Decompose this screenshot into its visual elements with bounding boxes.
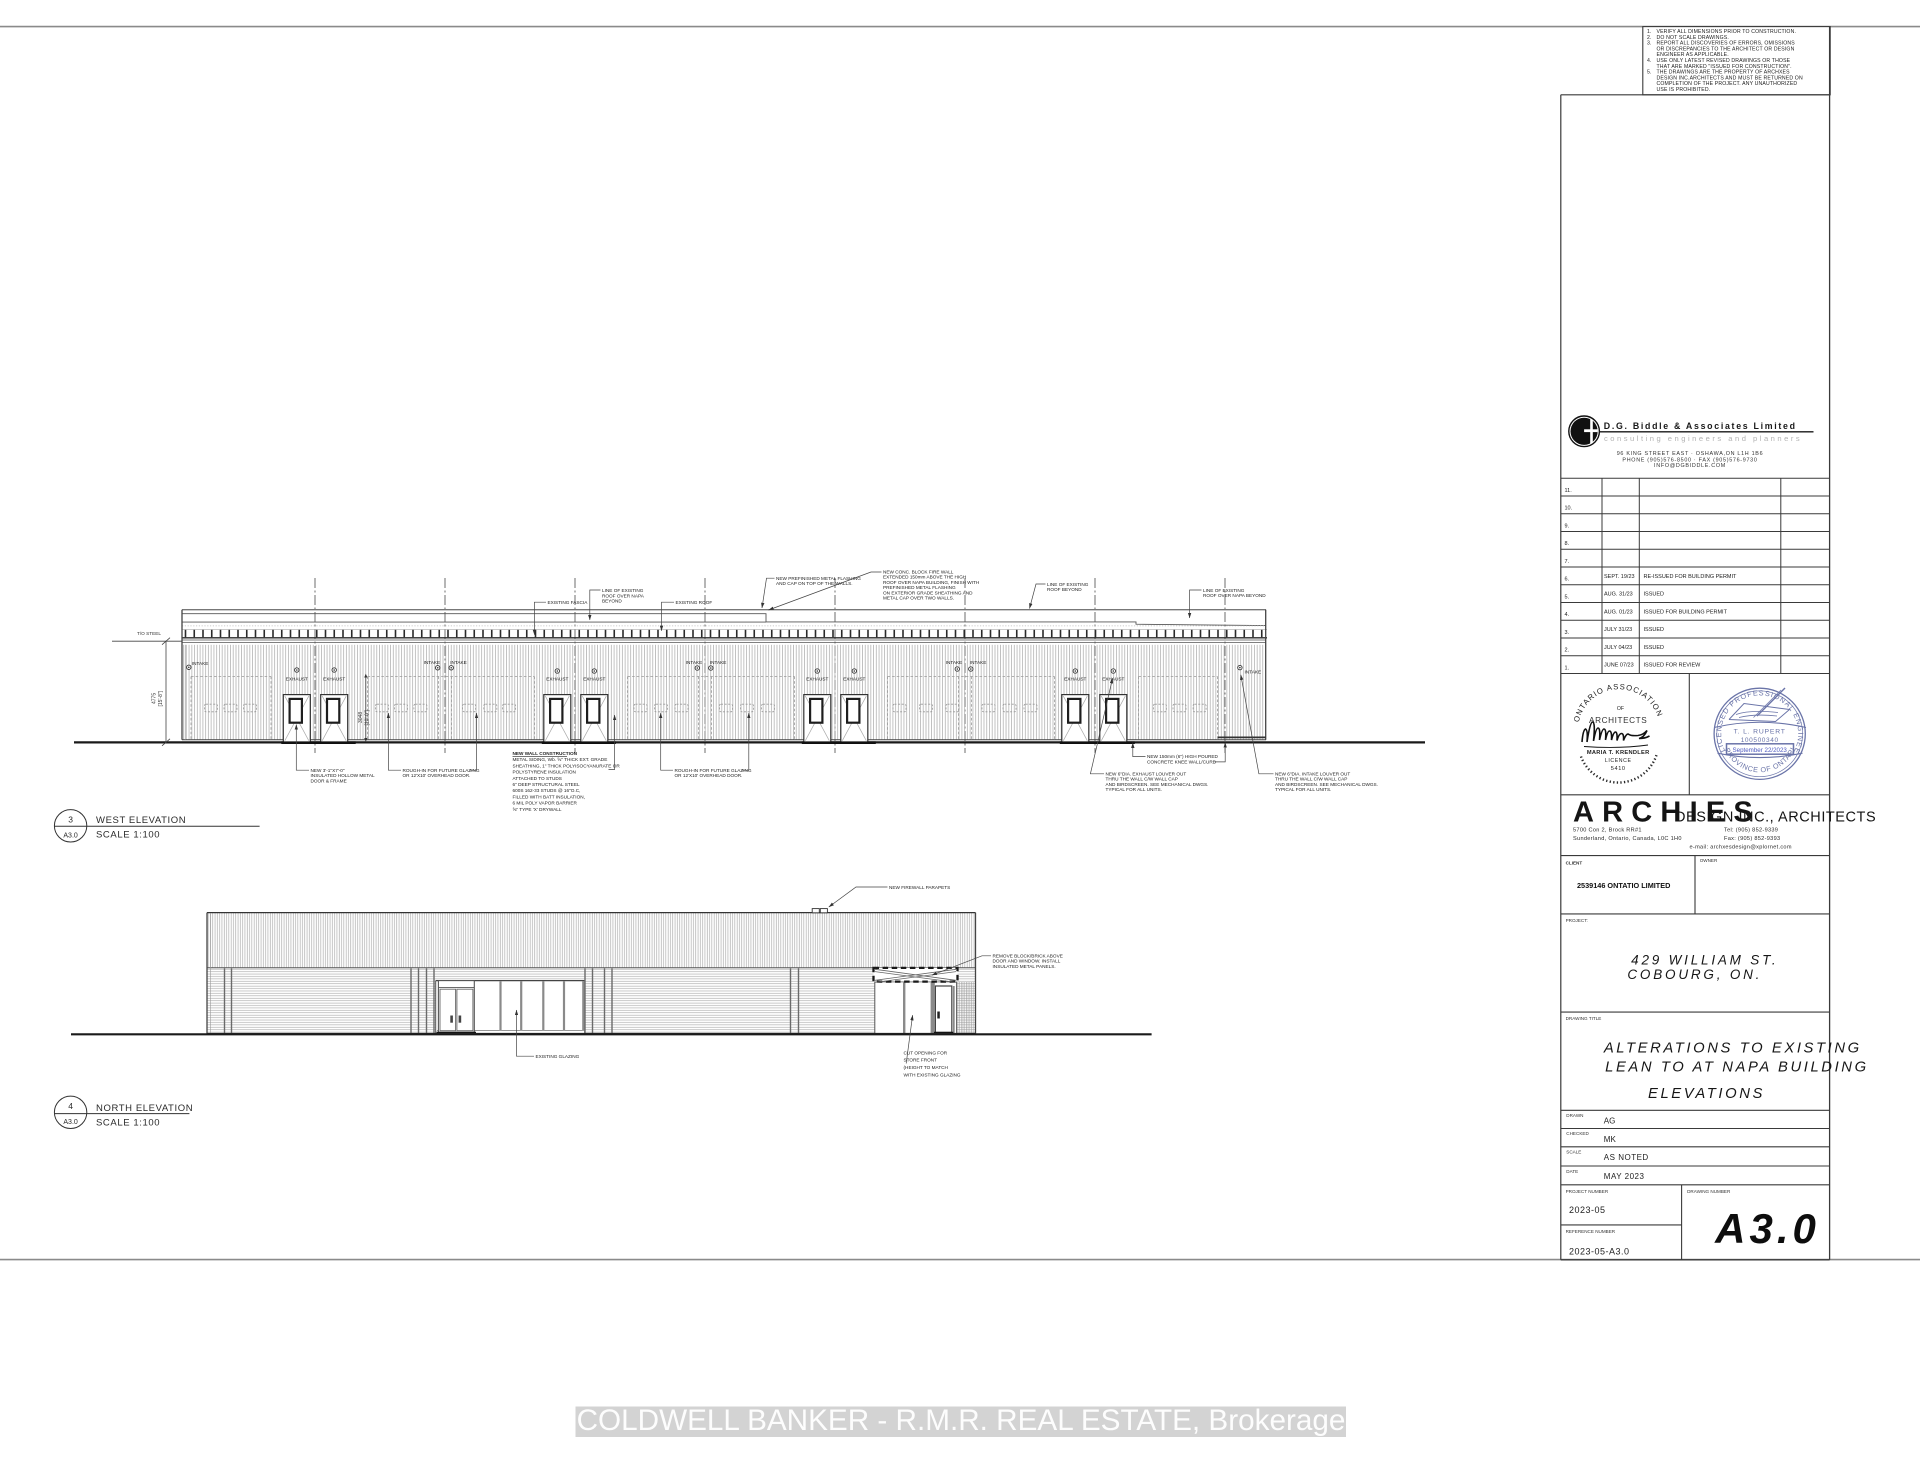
svg-text:EXHAUST: EXHAUST (286, 677, 308, 682)
svg-text:ISSUED FOR REVIEW: ISSUED FOR REVIEW (1644, 663, 1702, 669)
svg-text:Tel: (905) 852-9339: Tel: (905) 852-9339 (1724, 828, 1778, 834)
svg-text:ROUGH-IN FOR FUTURE GLAZING: ROUGH-IN FOR FUTURE GLAZING (675, 768, 752, 773)
svg-text:429 WILLIAM ST.: 429 WILLIAM ST. (1631, 953, 1778, 968)
svg-text:NEW FIREWALL PARAPETS: NEW FIREWALL PARAPETS (889, 885, 950, 890)
svg-text:Sunderland, Ontario, Canada,: Sunderland, Ontario, Canada, L0C 1H0 (1573, 836, 1682, 842)
svg-text:OF: OF (1617, 706, 1624, 712)
svg-text:INFO@DGBIDDLE.COM: INFO@DGBIDDLE.COM (1654, 463, 1726, 469)
svg-text:LEAN TO AT NAPA BUILDING: LEAN TO AT NAPA BUILDING (1605, 1060, 1869, 1076)
svg-text:11.: 11. (1565, 488, 1573, 494)
svg-text:OR 12'X10' OVERHEAD DOOR.: OR 12'X10' OVERHEAD DOOR. (675, 773, 743, 778)
svg-text:Fax: (905) 852-9393: Fax: (905) 852-9393 (1724, 836, 1780, 842)
svg-text:LICENCE: LICENCE (1605, 758, 1632, 764)
svg-text:5700 Con 2, Brock RR#1: 5700 Con 2, Brock RR#1 (1573, 828, 1642, 834)
svg-text:NORTH ELEVATION: NORTH ELEVATION (96, 1103, 193, 1114)
svg-text:AUG. 31/23: AUG. 31/23 (1604, 592, 1633, 598)
svg-text:2539146 ONTATIO LIMITED: 2539146 ONTATIO LIMITED (1577, 881, 1670, 890)
svg-text:ATTACHED TO STUDS: ATTACHED TO STUDS (513, 776, 562, 781)
svg-text:6.: 6. (1565, 577, 1570, 583)
svg-text:EXISTING ROOF: EXISTING ROOF (676, 600, 713, 605)
svg-text:NEW 6"DIA. EXHAUST LOUVER OUT: NEW 6"DIA. EXHAUST LOUVER OUT (1106, 771, 1187, 776)
svg-text:T. L. RUPERT: T. L. RUPERT (1734, 729, 1786, 736)
svg-text:MAY 2023: MAY 2023 (1604, 1172, 1645, 1181)
svg-text:BEYOND: BEYOND (602, 599, 622, 604)
svg-text:2023-05: 2023-05 (1569, 1205, 1606, 1215)
svg-text:96 KING STREET EAST · OSH: 96 KING STREET EAST · OSHAWA,ON L1H 1B6 (1617, 451, 1764, 457)
svg-text:METAL CAP OVER TWO WALLS.: METAL CAP OVER TWO WALLS. (883, 596, 954, 601)
svg-text:ROUGH-IN FOR FUTURE GLAZING: ROUGH-IN FOR FUTURE GLAZING (403, 768, 480, 773)
svg-text:ISSUED: ISSUED (1644, 645, 1665, 651)
svg-text:EXHAUST: EXHAUST (806, 677, 828, 682)
svg-text:STORE FRONT: STORE FRONT (904, 1058, 938, 1063)
svg-text:INTAKE: INTAKE (450, 660, 467, 665)
svg-text:EXHAUST: EXHAUST (1102, 677, 1124, 682)
svg-text:A3.0: A3.0 (1714, 1205, 1820, 1252)
svg-text:2.: 2. (1565, 648, 1570, 654)
svg-text:PROJECT:: PROJECT: (1566, 918, 1588, 923)
svg-text:(HEIGHT TO MATCH: (HEIGHT TO MATCH (904, 1065, 948, 1070)
svg-text:D.G. Biddle & Associates Limit: D.G. Biddle & Associates Limited (1604, 421, 1797, 431)
svg-text:INTAKE: INTAKE (686, 660, 703, 665)
svg-text:NEW 150mm (6") HIGH POURED: NEW 150mm (6") HIGH POURED (1147, 754, 1219, 759)
svg-text:USE IS PROHIBITED.: USE IS PROHIBITED. (1657, 87, 1711, 93)
svg-text:NEW 6"DIA. INTAKE LOUVER OUT: NEW 6"DIA. INTAKE LOUVER OUT (1275, 771, 1350, 776)
svg-text:600S 162-33 STUDS @ 16"O.C,: 600S 162-33 STUDS @ 16"O.C, (513, 788, 581, 793)
svg-text:REMOVE BLOCK/BRICK ABOVE: REMOVE BLOCK/BRICK ABOVE (993, 953, 1063, 958)
svg-text:5.: 5. (1565, 594, 1570, 600)
svg-text:MK: MK (1604, 1135, 1617, 1144)
svg-text:100500340: 100500340 (1741, 737, 1779, 744)
svg-text:NEW WALL CONSTRUCTION: NEW WALL CONSTRUCTION (513, 751, 578, 756)
svg-text:TYPICAL FOR ALL UNITS.: TYPICAL FOR ALL UNITS. (1106, 787, 1162, 792)
svg-text:JUNE 07/23: JUNE 07/23 (1604, 663, 1634, 669)
svg-text:INTAKE: INTAKE (946, 660, 963, 665)
svg-text:e-mail: archxesdesign@xplorn: e-mail: archxesdesign@xplornet.com (1690, 844, 1792, 850)
svg-text:INTAKE: INTAKE (192, 661, 209, 666)
svg-text:EXHAUST: EXHAUST (546, 677, 568, 682)
svg-text:INTAKE: INTAKE (710, 660, 727, 665)
svg-text:[15'-8"]: [15'-8"] (158, 690, 164, 706)
svg-text:ARCHITECTS: ARCHITECTS (1589, 716, 1647, 725)
svg-text:DRAWING NUMBER: DRAWING NUMBER (1687, 1189, 1731, 1194)
svg-text:DOOR & FRAME: DOOR & FRAME (311, 778, 347, 783)
svg-text:COBOURG, ON.: COBOURG, ON. (1627, 967, 1762, 982)
svg-text:A3.0: A3.0 (63, 1119, 78, 1126)
svg-text:SEPT. 19/23: SEPT. 19/23 (1604, 574, 1635, 580)
svg-text:WITH EXISTING GLAZING: WITH EXISTING GLAZING (904, 1072, 961, 1077)
svg-text:PROJECT NUMBER: PROJECT NUMBER (1566, 1189, 1609, 1194)
svg-text:JULY 04/23: JULY 04/23 (1604, 645, 1632, 651)
svg-text:3048: 3048 (358, 712, 364, 723)
svg-text:AND BIRDSCREEN. SEE MECHANICAL: AND BIRDSCREEN. SEE MECHANICAL DWGS. (1106, 782, 1209, 787)
svg-text:WEST ELEVATION: WEST ELEVATION (96, 815, 186, 826)
svg-text:2023-05-A3.0: 2023-05-A3.0 (1569, 1247, 1630, 1257)
svg-text:4: 4 (68, 1101, 73, 1111)
svg-text:AND CAP ON TOP OF THE WALLS.: AND CAP ON TOP OF THE WALLS. (776, 581, 853, 586)
svg-text:SCALE 1:100: SCALE 1:100 (96, 1117, 160, 1128)
svg-text:DRAWN: DRAWN (1566, 1113, 1583, 1118)
svg-text:METAL SIDING, Wb. ⅝" THICK EXT: METAL SIDING, Wb. ⅝" THICK EXT. GRADE (513, 757, 608, 762)
svg-text:1.: 1. (1565, 665, 1570, 671)
svg-text:AG: AG (1604, 1116, 1616, 1125)
svg-text:7.: 7. (1565, 559, 1570, 565)
svg-text:6" DEEP STRUCTURAL STEEL: 6" DEEP STRUCTURAL STEEL (513, 782, 580, 787)
svg-text:10.: 10. (1565, 506, 1573, 512)
svg-text:ISSUED: ISSUED (1644, 627, 1665, 633)
svg-text:consulting engineers and pl: consulting engineers and planners (1604, 434, 1802, 443)
svg-text:ISSUED FOR BUILDING PERMIT: ISSUED FOR BUILDING PERMIT (1644, 609, 1728, 615)
svg-text:SCALE 1:100: SCALE 1:100 (96, 830, 160, 841)
svg-text:ROOF BEYOND: ROOF BEYOND (1047, 587, 1082, 592)
svg-text:TYPICAL FOR ALL UNITS.: TYPICAL FOR ALL UNITS. (1275, 787, 1331, 792)
svg-text:EXHAUST: EXHAUST (1064, 677, 1086, 682)
svg-text:ELEVATIONS: ELEVATIONS (1648, 1086, 1765, 1102)
svg-text:CHECKED: CHECKED (1566, 1131, 1589, 1136)
svg-text:5.: 5. (1647, 70, 1652, 76)
svg-text:DATE: DATE (1566, 1169, 1578, 1174)
svg-text:NEW 3'-1"X7'-0": NEW 3'-1"X7'-0" (311, 768, 345, 773)
svg-text:POLYSTYRENE INSULATION: POLYSTYRENE INSULATION (513, 770, 576, 775)
svg-text:EXHAUST: EXHAUST (583, 677, 605, 682)
svg-text:INTAKE: INTAKE (424, 660, 441, 665)
svg-text:THRU THE WALL C/W WALL CAP: THRU THE WALL C/W WALL CAP (1106, 777, 1178, 782)
svg-text:September 22/2023: September 22/2023 (1733, 747, 1788, 754)
svg-text:COLDWELL BANKER - R.M.R. REAL: COLDWELL BANKER - R.M.R. REAL ESTATE, Br… (577, 1404, 1346, 1437)
svg-text:CUT OPENING FOR: CUT OPENING FOR (904, 1050, 948, 1055)
svg-text:MARIA T. KRENDLER: MARIA T. KRENDLER (1587, 750, 1650, 756)
svg-text:ISSUED: ISSUED (1644, 592, 1665, 598)
svg-text:SHEATHING, 1" THICK POLYISOCYA: SHEATHING, 1" THICK POLYISOCYANURATE OR (513, 763, 621, 768)
svg-text:4.: 4. (1565, 612, 1570, 618)
svg-text:4775: 4775 (152, 693, 158, 704)
svg-text:JULY 31/23: JULY 31/23 (1604, 627, 1632, 633)
svg-text:EXHAUST: EXHAUST (323, 677, 345, 682)
svg-text:DOOR AND WINDOW. INSTALL: DOOR AND WINDOW. INSTALL (993, 959, 1061, 964)
svg-text:THRU THE WALL C/W WALL CAP: THRU THE WALL C/W WALL CAP (1275, 777, 1347, 782)
svg-text:5410: 5410 (1611, 766, 1626, 772)
svg-text:INTAKE: INTAKE (1245, 670, 1262, 675)
svg-text:OWNER: OWNER (1700, 858, 1718, 863)
svg-text:3: 3 (68, 815, 73, 825)
svg-text:EXISTING GLAZING: EXISTING GLAZING (536, 1054, 580, 1059)
svg-text:6 MIL POLY VAPOR BARRIER: 6 MIL POLY VAPOR BARRIER (513, 801, 578, 806)
svg-text:4.: 4. (1647, 58, 1652, 64)
svg-text:AS NOTED: AS NOTED (1604, 1153, 1649, 1162)
svg-text:EXISTING FASCIA: EXISTING FASCIA (548, 600, 589, 605)
svg-text:INTAKE: INTAKE (970, 660, 987, 665)
svg-text:CLIENT: CLIENT (1566, 860, 1583, 865)
svg-text:3.: 3. (1647, 41, 1652, 47)
svg-text:SCALE: SCALE (1566, 1150, 1581, 1155)
svg-text:T/O STEEL: T/O STEEL (137, 631, 161, 636)
svg-text:[10'-0"]: [10'-0"] (365, 709, 371, 725)
svg-text:DRAWING TITLE: DRAWING TITLE (1566, 1016, 1602, 1021)
svg-text:RE-ISSUED FOR BUILDING PERMIT: RE-ISSUED FOR BUILDING PERMIT (1644, 574, 1738, 580)
svg-text:3.: 3. (1565, 630, 1570, 636)
svg-text:FILLED WITH BATT INSULATION,: FILLED WITH BATT INSULATION, (513, 794, 585, 799)
svg-text:AND BIRDSCREEN. SEE MECHANICAL: AND BIRDSCREEN. SEE MECHANICAL DWGS. (1275, 782, 1378, 787)
svg-text:INSULATED METAL PANELS.: INSULATED METAL PANELS. (993, 964, 1056, 969)
svg-text:OR 12'X10' OVERHEAD DOOR.: OR 12'X10' OVERHEAD DOOR. (403, 773, 471, 778)
svg-text:AUG. 01/23: AUG. 01/23 (1604, 609, 1633, 615)
svg-text:ALTERATIONS TO EXISTING: ALTERATIONS TO EXISTING (1603, 1040, 1862, 1056)
svg-text:ROOF OVER NAPA BEYOND: ROOF OVER NAPA BEYOND (1203, 593, 1266, 598)
svg-text:DESIGN INC., ARCHITECTS: DESIGN INC., ARCHITECTS (1675, 809, 1876, 825)
svg-text:⅝" TYPE 'X' DRYWALL: ⅝" TYPE 'X' DRYWALL (513, 807, 562, 812)
svg-text:REFERENCE NUMBER: REFERENCE NUMBER (1566, 1229, 1616, 1234)
svg-text:EXHAUST: EXHAUST (843, 677, 865, 682)
svg-text:CONCRETE KNEE WALL/CURB: CONCRETE KNEE WALL/CURB (1147, 760, 1216, 765)
svg-text:A3.0: A3.0 (63, 833, 78, 840)
svg-text:9.: 9. (1565, 523, 1570, 529)
svg-text:INSULATED HOLLOW METAL: INSULATED HOLLOW METAL (311, 773, 376, 778)
svg-text:8.: 8. (1565, 541, 1570, 547)
